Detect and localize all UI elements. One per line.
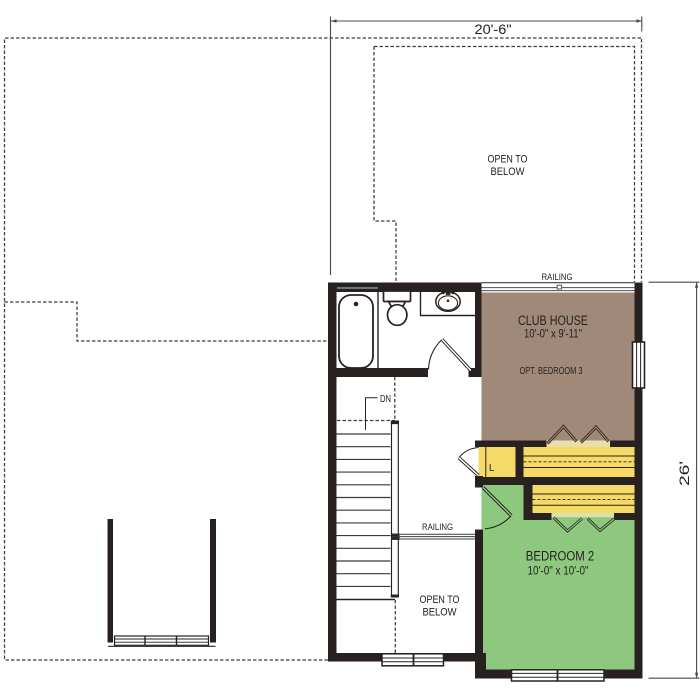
svg-text:20'-6": 20'-6" — [475, 21, 512, 37]
svg-text:OPEN TO: OPEN TO — [488, 154, 528, 166]
svg-text:10'-0" x 9'-11": 10'-0" x 9'-11" — [524, 327, 582, 341]
svg-text:26': 26' — [676, 461, 692, 486]
svg-text:RAILING: RAILING — [542, 272, 573, 282]
svg-text:OPT. BEDROOM 3: OPT. BEDROOM 3 — [520, 366, 583, 377]
svg-text:OPEN TO: OPEN TO — [420, 594, 460, 606]
svg-text:BEDROOM 2: BEDROOM 2 — [526, 549, 595, 565]
svg-text:RAILING: RAILING — [422, 522, 453, 532]
svg-text:BELOW: BELOW — [491, 166, 526, 178]
svg-text:DN: DN — [380, 393, 391, 405]
svg-text:10'-0" x 10'-0": 10'-0" x 10'-0" — [528, 564, 589, 578]
svg-text:BELOW: BELOW — [423, 607, 458, 619]
svg-text:L: L — [489, 463, 495, 474]
